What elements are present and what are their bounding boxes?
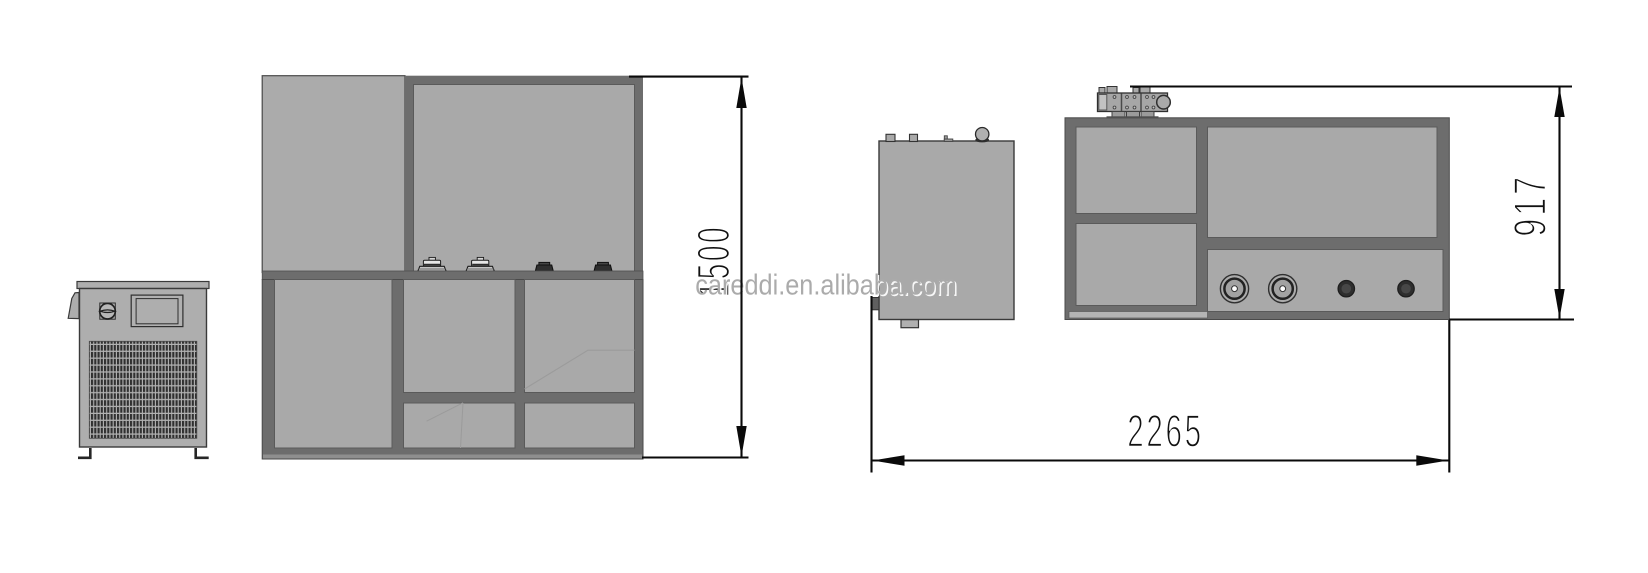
svg-text:careddi.en.alibaba.com: careddi.en.alibaba.com [695, 268, 956, 301]
svg-text:917: 917 [1506, 174, 1555, 237]
svg-text:2265: 2265 [1127, 408, 1203, 458]
